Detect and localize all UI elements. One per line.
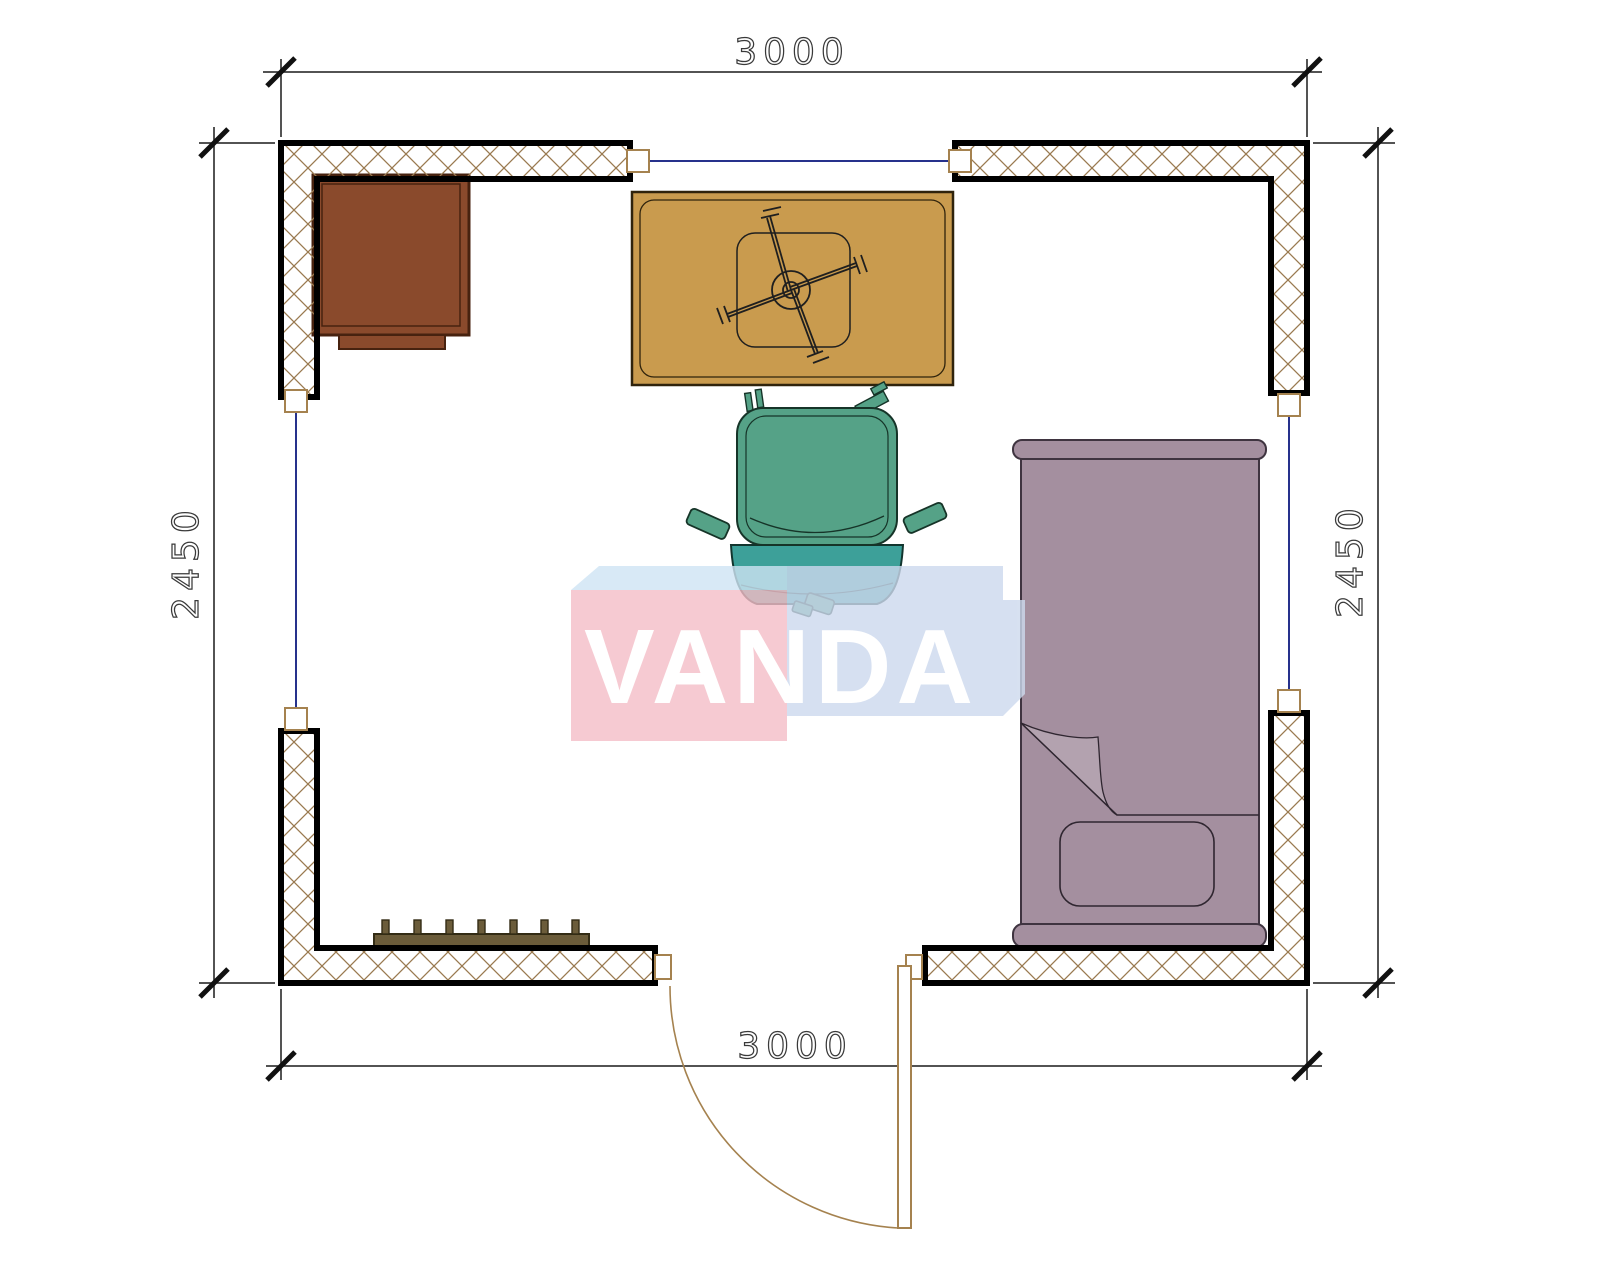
dim-label-right: 2450 <box>1330 502 1371 618</box>
dim-label-top: 3000 <box>734 32 850 73</box>
floor-plan-canvas: 3000 3000 2450 2450 VANDA <box>0 0 1600 1280</box>
bed-body <box>1021 452 1259 928</box>
dim-label-bottom: 3000 <box>737 1026 853 1067</box>
door <box>655 955 922 1228</box>
table <box>632 192 953 385</box>
bed <box>1013 440 1266 947</box>
bed-footboard <box>1013 924 1266 947</box>
desk-drawer-tab <box>339 335 445 349</box>
chair-seat <box>737 408 897 545</box>
window-left-frame-top <box>285 390 307 412</box>
watermark-text: VANDA <box>584 608 978 726</box>
watermark: VANDA <box>571 566 1025 741</box>
door-swing-arc <box>670 986 898 1228</box>
window-top-frame-left <box>627 150 649 172</box>
window-left-frame-bottom <box>285 708 307 730</box>
wall-top-right <box>955 143 1307 393</box>
floor-plan-drawing: 3000 3000 2450 2450 VANDA <box>0 0 1600 1280</box>
radiator-fins <box>382 920 579 934</box>
dim-label-left: 2450 <box>166 504 207 620</box>
watermark-top-face <box>571 566 815 590</box>
radiator <box>374 920 589 949</box>
window-top-frame-right <box>949 150 971 172</box>
desk-top <box>313 175 469 335</box>
wall-bottom-left <box>281 731 655 983</box>
window-right-frame-bottom <box>1278 690 1300 712</box>
door-jamb-left <box>655 955 671 979</box>
chair-armrest-right <box>902 502 947 535</box>
door-leaf <box>898 966 911 1228</box>
chair-armrest-left <box>685 508 730 541</box>
window-right-frame-top <box>1278 394 1300 416</box>
desk-cabinet <box>313 175 469 349</box>
bed-headboard <box>1013 440 1266 459</box>
